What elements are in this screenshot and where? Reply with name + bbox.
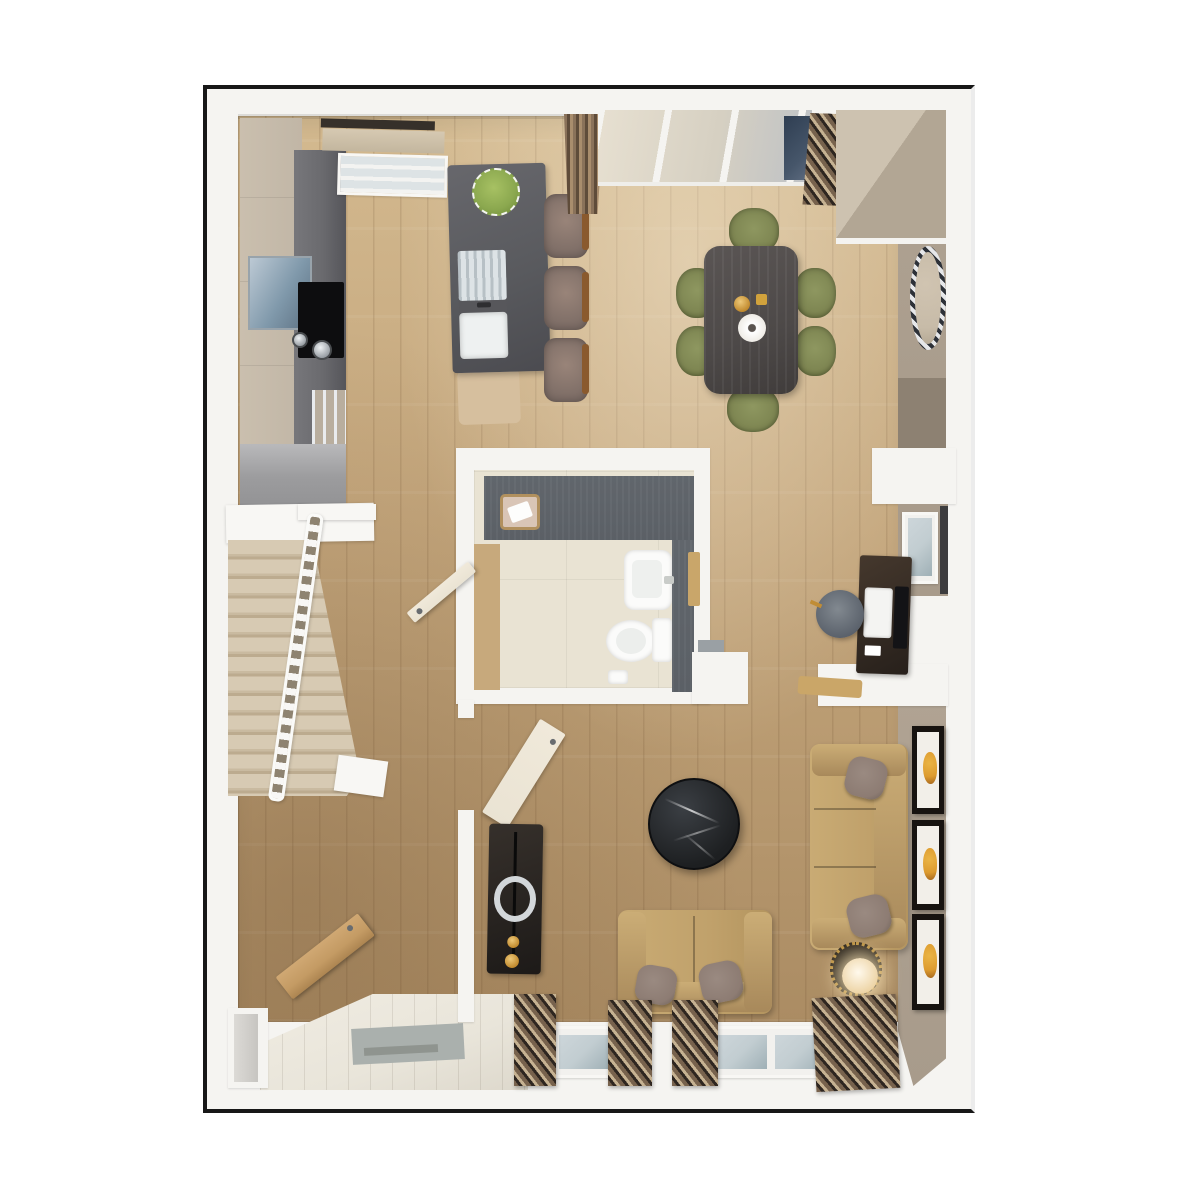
living-door-handle-icon [549, 738, 557, 746]
ring-sculpture-icon [494, 876, 537, 923]
partition-wall [458, 810, 474, 1022]
wall-art-frame [912, 726, 944, 814]
study-nook [808, 446, 958, 686]
round-mirror [910, 246, 946, 350]
patio-door [598, 110, 812, 186]
staircase [222, 500, 392, 810]
wc-door-handle-icon [415, 607, 423, 615]
vase-icon [734, 296, 750, 312]
study-upper-wall [872, 448, 956, 504]
toilet-cistern [652, 618, 672, 662]
wash-basin [624, 550, 672, 610]
desk-stool [816, 590, 864, 638]
island-bench [457, 369, 521, 425]
dining-area [660, 200, 850, 440]
door-mat [351, 1023, 465, 1065]
kitchen-window [317, 116, 449, 197]
sideboard [836, 110, 946, 244]
pan-icon [292, 332, 308, 348]
lamp-icon [842, 958, 878, 994]
coffee-table [648, 778, 740, 870]
blind-bundle [608, 1000, 652, 1086]
plant-icon [471, 167, 520, 216]
blind-bundle [812, 994, 901, 1092]
bath-mat [608, 670, 628, 684]
bathroom-area [456, 448, 710, 704]
stair-newel-post [334, 755, 389, 798]
blind-bundle [514, 994, 556, 1086]
blind-bundle [672, 1000, 718, 1086]
wicker-basket [500, 494, 540, 530]
sofa-two-seat [618, 910, 772, 1014]
wall-art-frame [912, 914, 944, 1010]
floor-plan-stage [0, 0, 1200, 1200]
candle-icon [507, 936, 519, 948]
entry-niche [228, 1008, 268, 1088]
faucet-icon [477, 302, 491, 307]
roman-shade [322, 128, 445, 153]
kitchen-island [447, 163, 550, 373]
bottom-window [552, 1026, 616, 1078]
toilet [606, 620, 656, 662]
candle-icon [505, 954, 519, 968]
dining-chair [794, 326, 836, 376]
sofa-three-seat [810, 744, 908, 950]
wall-art-frame [912, 820, 944, 910]
bath-wood-strip [474, 544, 500, 690]
pan-icon [312, 340, 332, 360]
front-door-handle-icon [346, 924, 354, 932]
dining-chair [794, 268, 836, 318]
dining-table [704, 246, 798, 394]
bath-shelf [688, 552, 700, 606]
entry-niche-shelf [234, 1014, 258, 1082]
corridor-corner-wall [692, 652, 748, 704]
living-room [610, 740, 950, 1030]
serving-plate-icon [738, 314, 766, 342]
tv-console [487, 824, 544, 975]
desk [856, 555, 912, 675]
gold-box-icon [756, 294, 767, 305]
partition-wall-stub [458, 700, 474, 718]
sink-drainer [458, 250, 507, 301]
bar-stool [544, 338, 588, 402]
window-glass [337, 153, 448, 198]
sink-basin [459, 312, 508, 359]
bar-stool [544, 266, 588, 330]
